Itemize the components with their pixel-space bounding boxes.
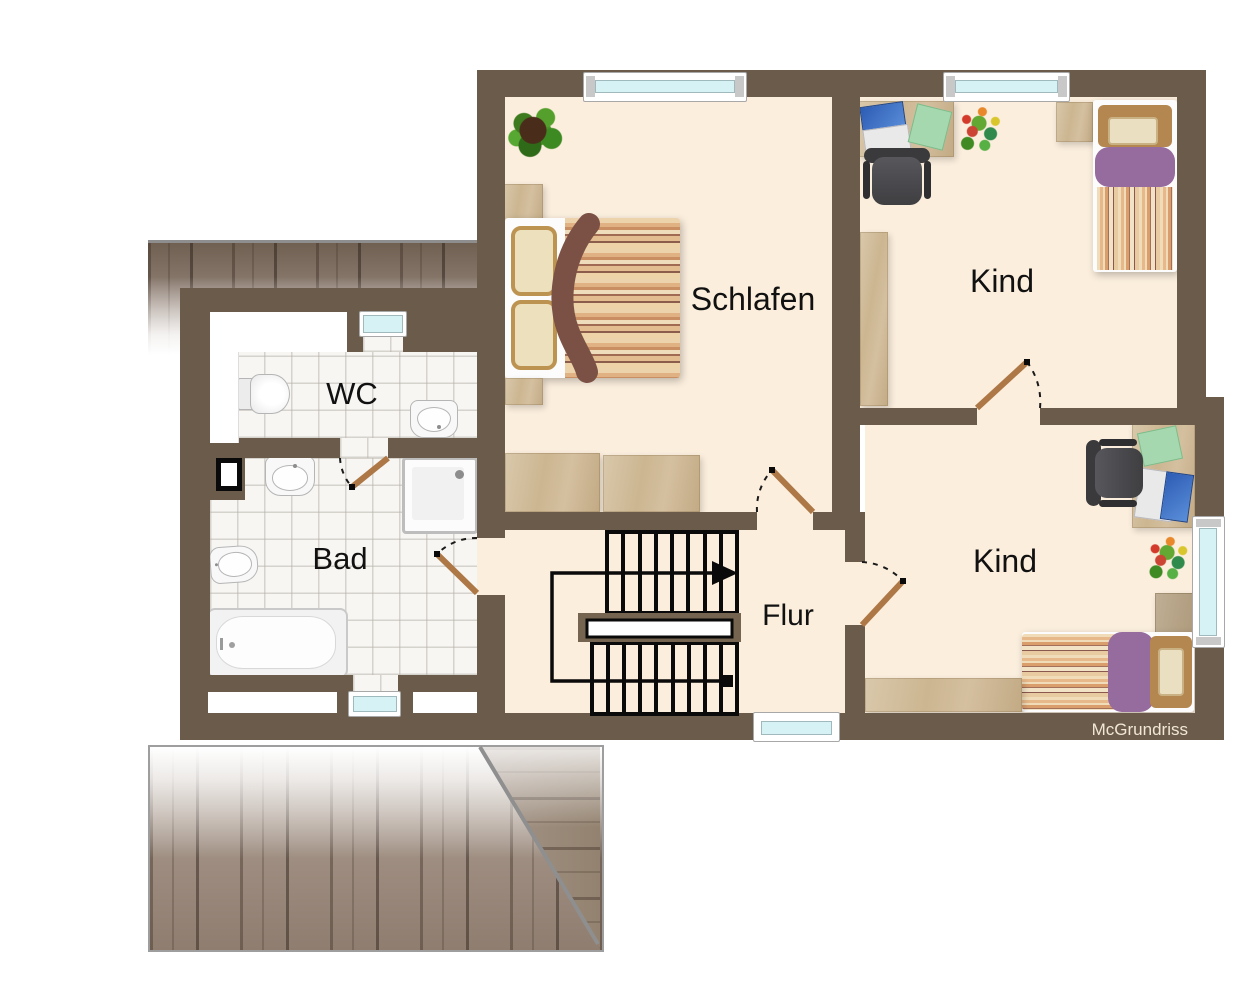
single-bed [1093,100,1177,272]
office-chair [864,148,930,210]
window-glass [1199,528,1217,636]
window-glass [955,80,1058,93]
wall-segment [813,512,865,530]
wall-segment [180,288,210,740]
window-glass [353,696,397,712]
knee-wall [208,675,337,692]
toilet-icon [238,374,290,414]
wall-segment [845,530,865,562]
floor-plan: WC Bad Schlafen Kind Kind Flur McGrundri… [0,0,1260,1001]
wall-segment [420,312,477,352]
room-label-bad: Bad [280,541,400,577]
room-label-flur: Flur [738,599,838,633]
door-opening-floor [977,408,1040,425]
sink-icon [265,456,315,496]
wall-segment [180,288,477,312]
pillow [1158,648,1184,696]
window-glass [363,315,403,333]
wall-segment [845,625,865,713]
eave-strip [413,692,477,713]
flower-bouquet-icon [1145,535,1191,581]
wardrobe [860,232,888,406]
cabinet [1155,593,1194,634]
window-cap [1058,76,1067,97]
bathtub-icon [207,608,348,678]
chair-armrest [1099,500,1137,507]
chair-armrest [924,161,931,199]
sink-icon [410,400,458,438]
room-label-kind-bottom: Kind [945,543,1065,579]
watermark: McGrundriss [1038,720,1188,740]
knee-wall [413,675,477,692]
window-cap [1196,637,1221,645]
pillow [511,226,557,296]
chair-seat [1095,448,1143,498]
window-cap [946,76,955,97]
door-opening-floor [757,512,813,530]
window-cap [1196,519,1221,527]
wall-segment [505,512,757,530]
door-opening-floor [845,562,865,625]
wall-niche [216,458,242,491]
chair-armrest [863,161,870,199]
nightstand [1056,102,1093,142]
chair-seat [872,157,922,205]
door-opening-floor [477,538,505,595]
wall-segment [477,70,505,538]
room-label-wc: WC [292,376,412,412]
window-glass [761,721,832,735]
bed-blanket [1095,147,1175,187]
roof-slope-triangle [479,747,600,948]
flower-bouquet-icon [956,105,1004,153]
eave-strip [210,312,347,352]
pillow [511,300,557,370]
bed-duvet [1022,634,1114,710]
shower-icon [402,457,478,534]
window-glass [595,80,735,93]
bidet-icon [209,544,259,584]
single-bed [1022,632,1194,712]
pillow [1108,117,1158,145]
bed-duvet [1097,187,1173,270]
office-chair [1086,440,1148,506]
window-cap [586,76,595,97]
eave-strip [210,352,239,443]
bed-blanket [1108,632,1154,712]
nightstand [503,184,543,222]
door-opening-tiles [340,438,388,458]
nightstand [505,378,543,405]
wall-segment [1040,408,1224,425]
eave-strip [208,692,337,713]
sideboard [865,678,1022,712]
dresser [603,455,700,512]
dresser [505,453,600,512]
roof-area-bottom-left [148,745,604,952]
potted-plant-icon [506,106,566,164]
room-label-schlafen: Schlafen [643,281,863,317]
room-label-kind-top: Kind [942,263,1062,299]
wall-segment [1177,70,1206,408]
wall-segment [388,438,477,458]
chair-armrest [1099,439,1137,446]
window-cap [735,76,744,97]
